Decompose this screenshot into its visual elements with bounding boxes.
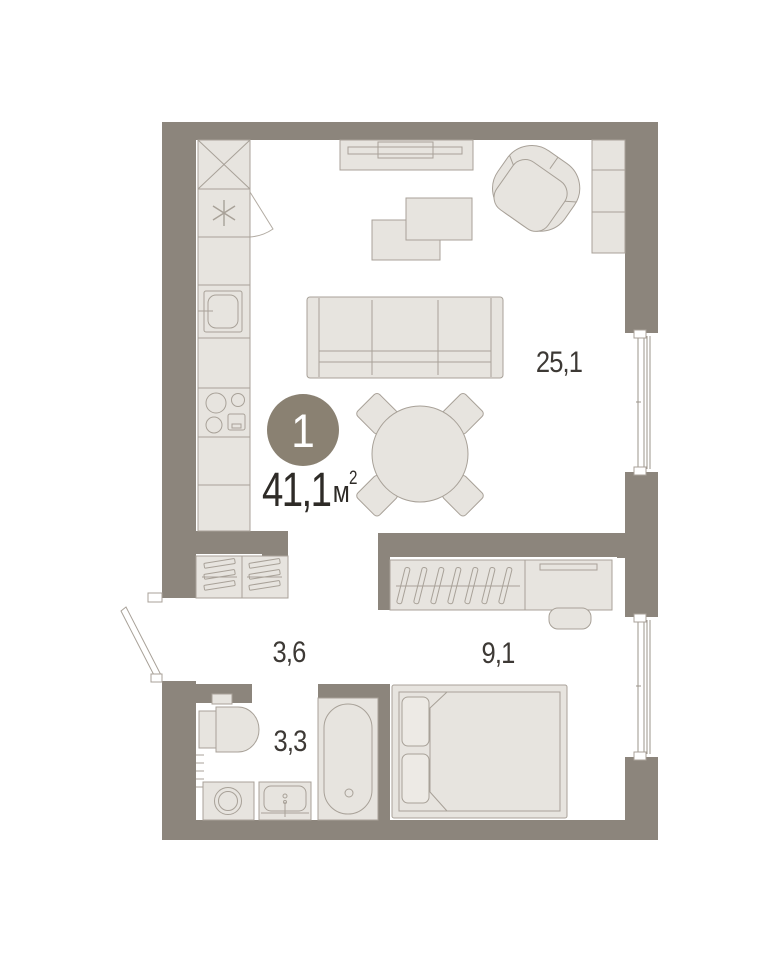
floor-plan-graphics xyxy=(0,0,779,960)
room-area-label-hallway: 3,6 xyxy=(273,636,306,670)
wall-bedroom-stub xyxy=(378,533,390,610)
washing-machine-icon xyxy=(203,782,254,820)
floor-plan: 25,1 3,6 9,1 3,3 1 41,1 м 2 xyxy=(0,0,779,960)
window-living-room xyxy=(625,330,658,475)
unit-number-badge: 1 xyxy=(267,394,339,466)
desk xyxy=(525,560,612,610)
room-area-label-bedroom: 9,1 xyxy=(482,637,515,671)
living-room-furniture xyxy=(307,134,625,518)
armchair xyxy=(481,134,592,243)
wardrobe-column xyxy=(592,140,625,253)
window-frame-cap xyxy=(634,752,646,760)
pillow xyxy=(402,697,429,746)
wall-right-lower xyxy=(625,757,658,840)
door-leaf-icon xyxy=(121,607,162,681)
room-area-label-living: 25,1 xyxy=(536,346,582,380)
window-frame-cap xyxy=(634,467,646,475)
sofa xyxy=(307,297,503,378)
entrance-door xyxy=(121,593,162,682)
door-hinge-cap xyxy=(151,674,162,682)
bathroom-wall-box xyxy=(212,694,232,704)
window-frame-cap xyxy=(634,614,646,622)
unit-total-area: 41,1 м 2 xyxy=(262,467,357,515)
toilet-icon xyxy=(199,707,259,752)
wall-left-upper xyxy=(162,122,196,598)
kitchen-counter xyxy=(198,338,250,388)
wall-living-bedroom xyxy=(378,533,658,557)
bathroom-sink-icon xyxy=(259,782,311,820)
unit-area-exponent: 2 xyxy=(349,469,357,488)
kitchen-counter xyxy=(198,237,250,285)
unit-area-value: 41,1 xyxy=(262,467,330,515)
dining-table xyxy=(372,406,468,502)
desk-chair xyxy=(549,608,591,629)
cabinet-door-swing-icon xyxy=(250,192,273,237)
bed xyxy=(392,685,567,818)
hall-closet xyxy=(196,556,288,598)
door-jamb-cap xyxy=(148,593,162,602)
bedroom-furniture xyxy=(390,560,612,818)
window-frame-cap xyxy=(634,330,646,338)
dining-set xyxy=(355,392,485,518)
bathtub-icon xyxy=(318,698,378,820)
wall-left-lower xyxy=(162,681,196,840)
wall-closet xyxy=(196,531,262,554)
kitchen-counter xyxy=(198,437,250,485)
window-opening xyxy=(625,333,658,472)
tv-stand xyxy=(340,140,473,170)
window-opening xyxy=(625,617,658,757)
wall-right-upper xyxy=(625,122,658,333)
unit-number: 1 xyxy=(291,407,315,454)
wall-bathroom-top-left xyxy=(162,684,252,703)
unit-area-unit: м xyxy=(333,476,349,507)
pillow xyxy=(402,754,429,803)
wall-top xyxy=(162,122,658,140)
room-area-label-bathroom: 3,3 xyxy=(274,725,307,759)
wall-bottom xyxy=(162,820,658,840)
window-bedroom xyxy=(625,614,658,760)
wall-bathroom-bedroom xyxy=(378,684,390,820)
kitchen-counter xyxy=(198,485,250,531)
coffee-table xyxy=(406,198,472,240)
